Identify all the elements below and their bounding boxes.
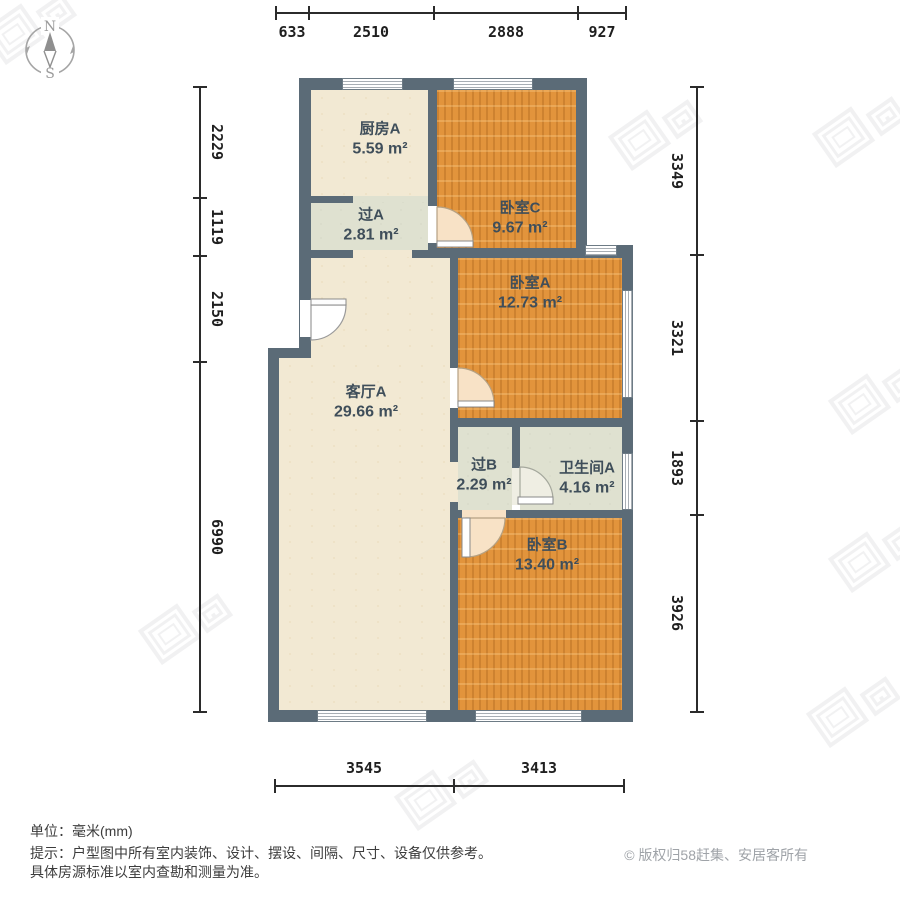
wall [512, 427, 520, 470]
window [317, 710, 427, 722]
dim-label: 2150 [208, 291, 226, 327]
door-opening-bedroom-b [462, 510, 506, 518]
door-opening-bedroom-a [450, 368, 458, 408]
compass-needle [44, 32, 56, 57]
room-bedroom-a [458, 258, 622, 418]
room-bedroom-b [458, 518, 622, 710]
floorplan-page: N S [0, 0, 900, 900]
dim-label: 3545 [346, 759, 382, 777]
compass-south-label: S [45, 66, 55, 82]
window [453, 78, 533, 90]
room-living-a-upper [311, 258, 450, 358]
wall [450, 418, 633, 427]
watermark [812, 84, 900, 168]
dim-label: 1893 [668, 450, 686, 486]
dim-label: 3413 [521, 759, 557, 777]
dim-label: 2229 [208, 124, 226, 160]
room-bedroom-c [437, 90, 576, 250]
window [622, 453, 633, 510]
window [622, 290, 633, 398]
dim-label: 3349 [668, 153, 686, 189]
wall [299, 250, 353, 258]
footer-tip-line2: 具体房源标准以室内查勘和测量为准。 [30, 862, 268, 882]
room-hall-b [458, 427, 512, 510]
dim-label: 1119 [208, 209, 226, 245]
window [585, 245, 617, 256]
room-kitchen-a [311, 90, 428, 196]
copyright: © 版权归58赶集、安居客所有 [624, 845, 808, 865]
watermark [608, 87, 703, 171]
dim-label: 2510 [353, 23, 389, 41]
compass-north-label: N [44, 19, 56, 35]
dim-label: 633 [278, 23, 305, 41]
dim-label: 2888 [488, 23, 524, 41]
wall [268, 348, 279, 722]
door-opening-entrance [300, 300, 311, 337]
watermark [138, 581, 233, 665]
dim-label: 3321 [668, 320, 686, 356]
door-opening-bathroom-a [512, 468, 520, 505]
compass-left-arrow [26, 46, 30, 54]
opening-living-hall-b [450, 462, 458, 502]
room-hall-a [311, 203, 428, 250]
watermark [0, 0, 77, 65]
opening-hall-a-living [353, 250, 412, 258]
dim-label: 6990 [208, 519, 226, 555]
watermark [806, 664, 900, 748]
compass-right-arrow [70, 46, 74, 54]
window [475, 710, 582, 722]
wall [311, 196, 353, 203]
room-living-a-lower [279, 358, 450, 710]
opening-kitchen-hall-a [353, 196, 428, 203]
watermark [828, 351, 900, 435]
wall [576, 78, 587, 256]
footer-tip-line1: 提示：户型图中所有室内装饰、设计、摆设、间隔、尺寸、设备仅供参考。 [30, 843, 492, 863]
window [342, 78, 403, 90]
watermark [394, 747, 489, 831]
compass: N S [12, 12, 90, 92]
dim-label: 3926 [668, 595, 686, 631]
dim-label: 927 [588, 23, 615, 41]
door-opening-bedroom-c [428, 206, 437, 243]
room-bathroom-a [520, 427, 622, 510]
watermark [828, 509, 900, 593]
footer-unit-note: 单位：毫米(mm) [30, 821, 133, 841]
